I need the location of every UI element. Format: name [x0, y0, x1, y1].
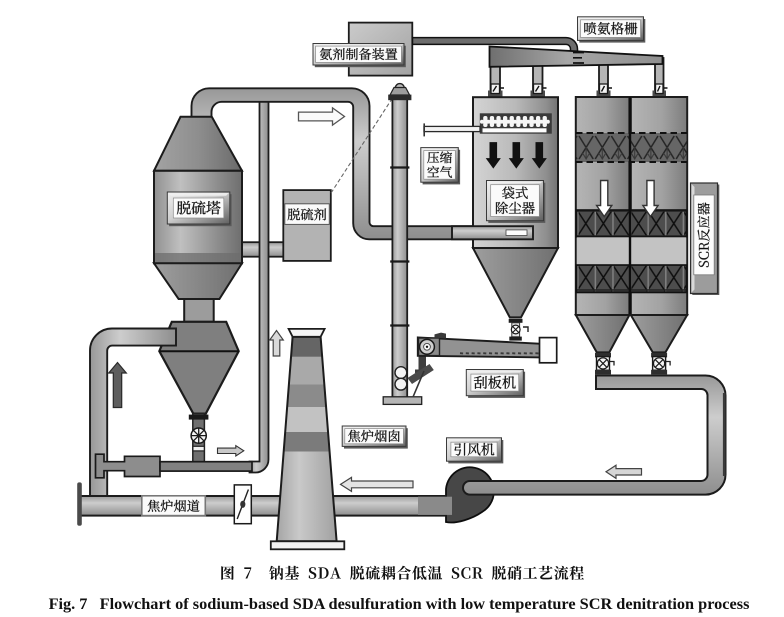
- svg-text:Fig. 7 Flowchart of sodium-b: Fig. 7 Flowchart of sodium-based SDA des…: [49, 594, 750, 613]
